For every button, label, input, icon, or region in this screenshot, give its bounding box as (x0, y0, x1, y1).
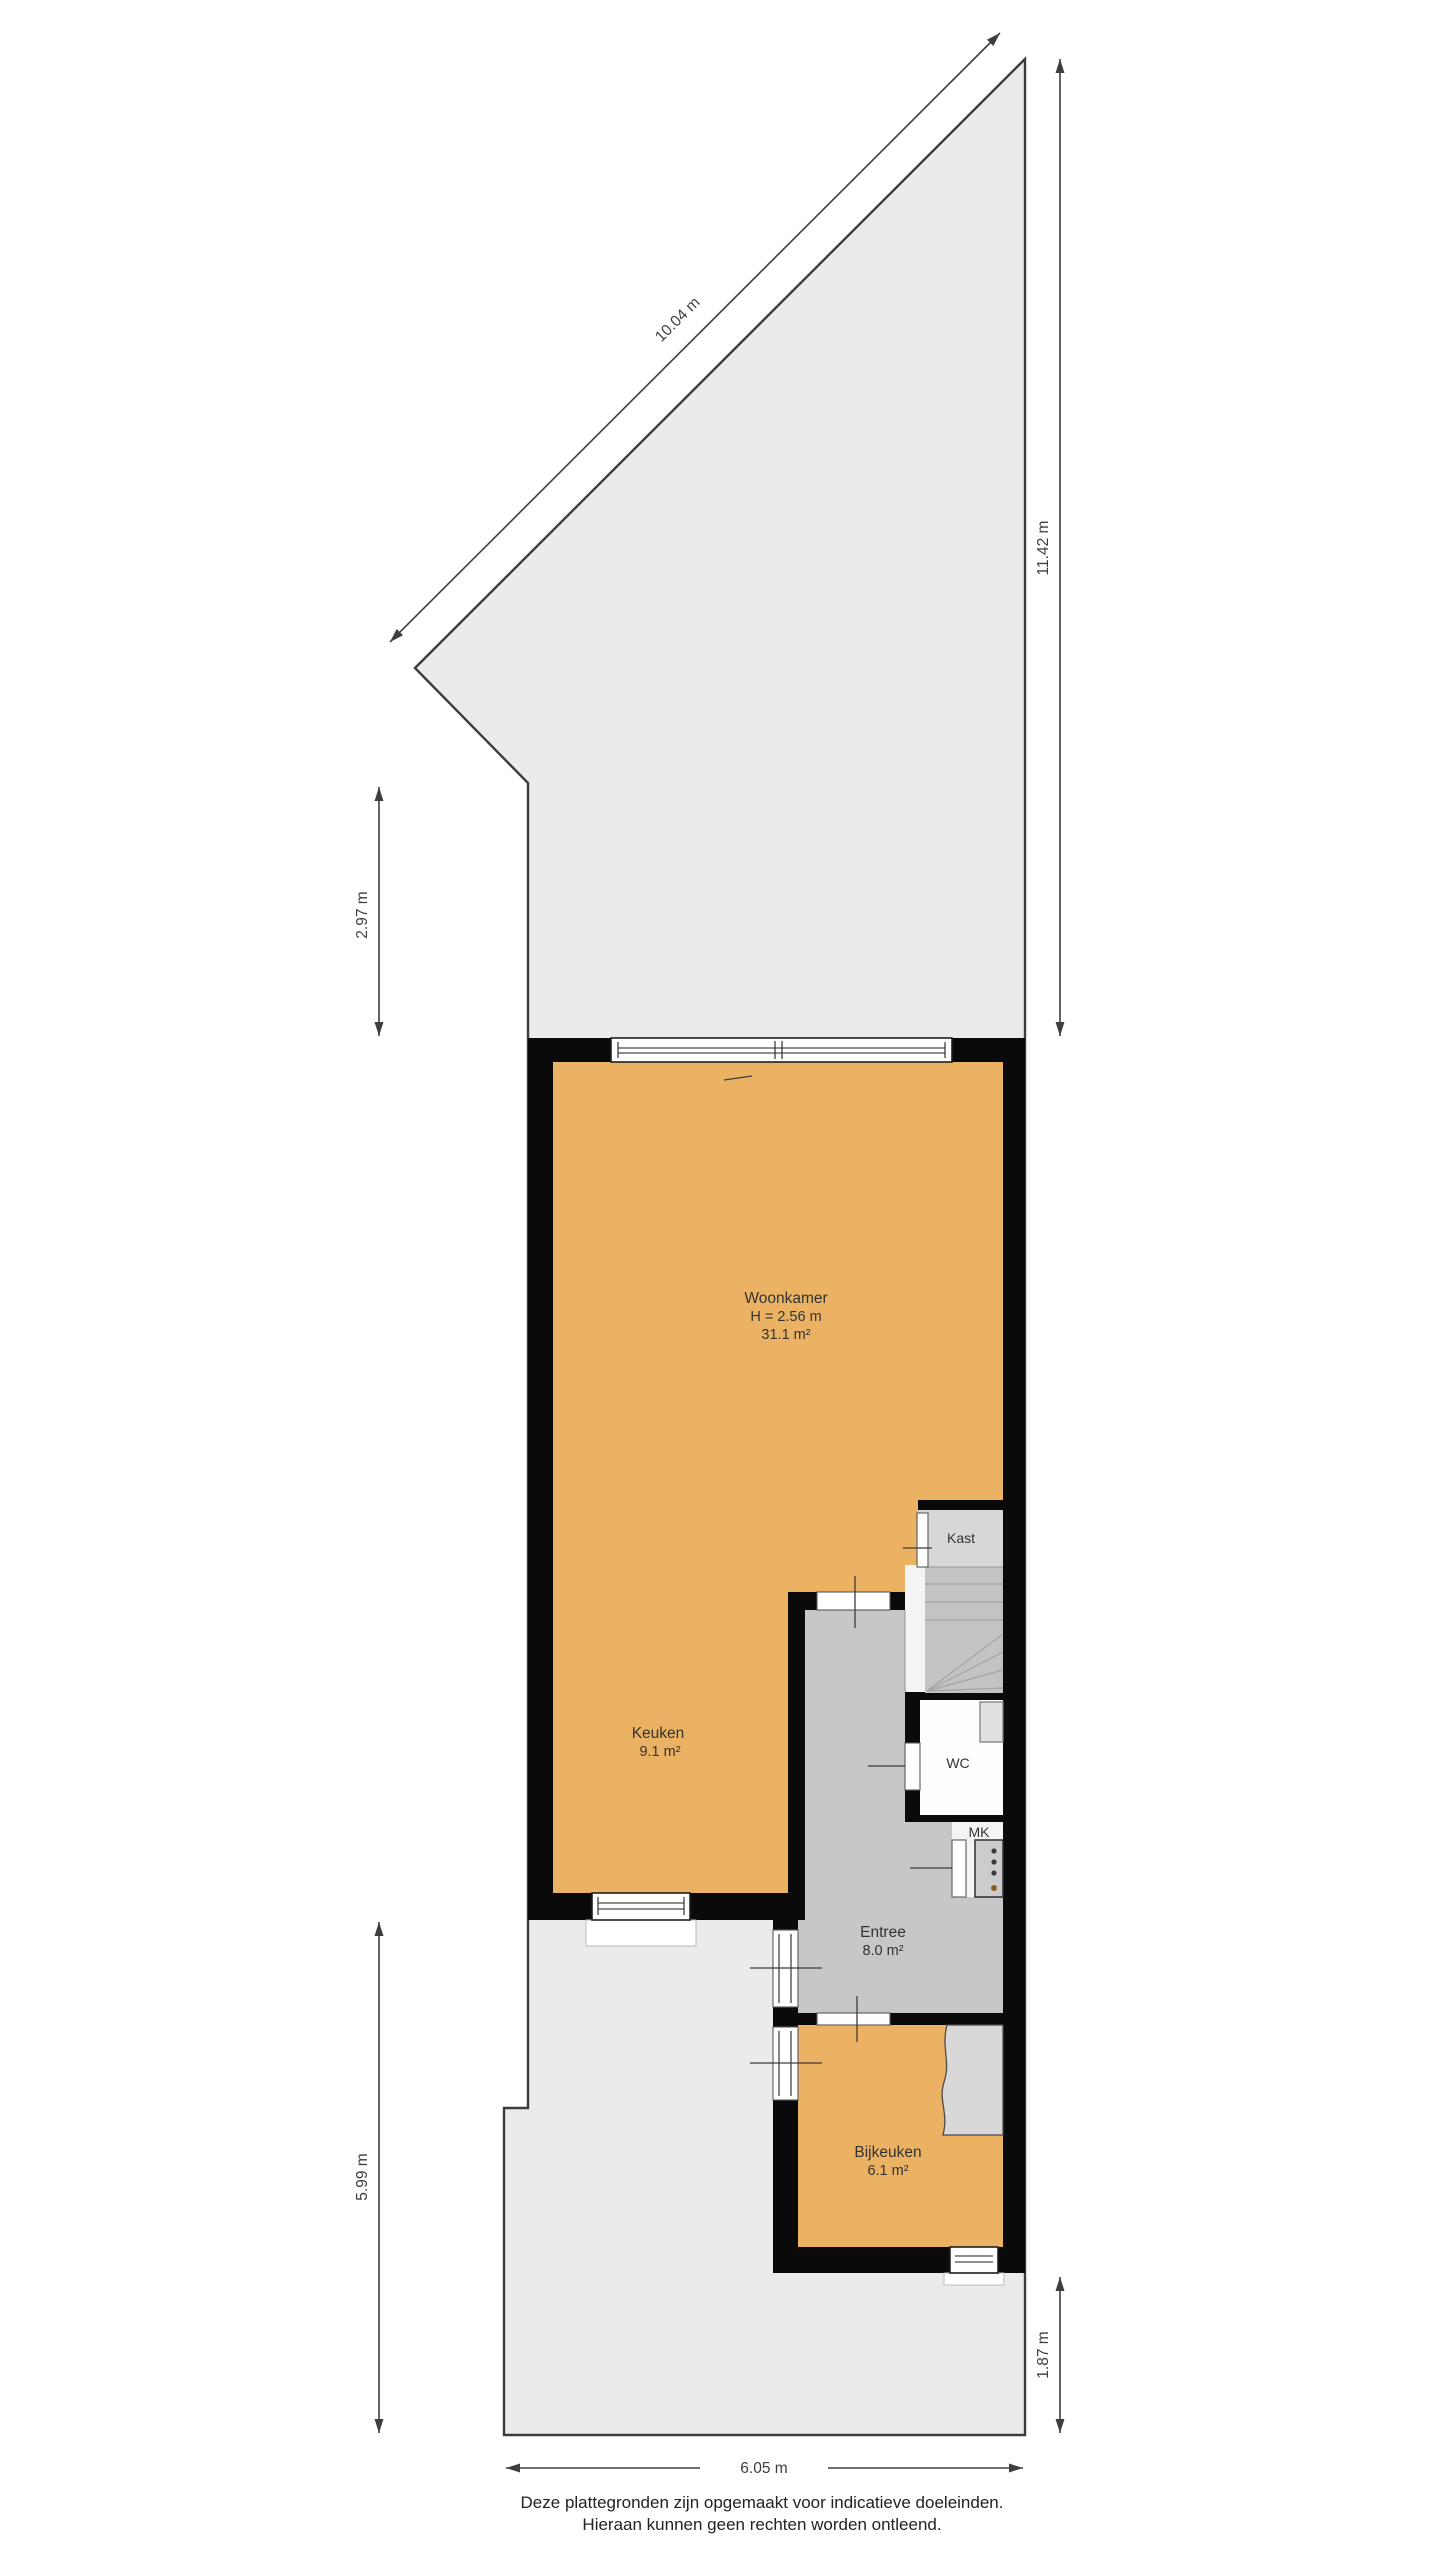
label-keuken-area: 9.1 m² (639, 1744, 680, 1760)
wc-cabinet (980, 1702, 1003, 1742)
wall-left (528, 1062, 553, 1920)
label-bijkeuken-area: 6.1 m² (867, 2163, 908, 2179)
dimension-label: 11.42 m (1035, 521, 1052, 576)
wall-below-stairs (905, 1692, 1003, 1700)
dimension-plot-bottom: 6.05 m (506, 2460, 1023, 2477)
disclaimer: Deze plattegronden zijn opgemaakt voor i… (521, 2493, 1004, 2534)
dimension-plot-left-upper: 2.97 m (354, 787, 379, 1036)
dimension-plot-right: 11.42 m (1035, 59, 1060, 1036)
label-entree: Entree (860, 1924, 906, 1941)
mk-meter-unit (975, 1840, 1003, 1897)
label-kast: Kast (947, 1530, 975, 1546)
wall-right (1003, 1038, 1025, 2273)
label-keuken: Keuken (632, 1725, 685, 1742)
meter-knob (991, 1870, 996, 1875)
floor-stairs-landing (905, 1565, 925, 1692)
floorplan-page: Woonkamer H = 2.56 m 31.1 m² Keuken 9.1 … (0, 0, 1440, 2560)
dimension-label: 10.04 m (652, 294, 704, 346)
label-mk: MK (969, 1824, 991, 1840)
meter-knob (991, 1859, 996, 1864)
window-sill (586, 1920, 696, 1946)
floor-stairs (925, 1567, 1003, 1693)
floorplan-canvas: Woonkamer H = 2.56 m 31.1 m² Keuken 9.1 … (0, 0, 1440, 2560)
label-wc: WC (946, 1755, 969, 1771)
dimension-plot-bottom-right: 1.87 m (1035, 2277, 1060, 2433)
window-keuken-bottom (586, 1893, 696, 1946)
dimension-plot-left-lower: 5.99 m (354, 1922, 379, 2433)
dimension-label: 2.97 m (354, 891, 371, 938)
label-entree-area: 8.0 m² (862, 1943, 903, 1959)
meter-knob (991, 1848, 996, 1853)
wall-kast-top (918, 1500, 1003, 1510)
disclaimer-line-2: Hieraan kunnen geen rechten worden ontle… (582, 2515, 941, 2534)
dimension-label: 5.99 m (354, 2153, 371, 2200)
label-woonkamer-area: 31.1 m² (761, 1327, 810, 1343)
dimension-label: 1.87 m (1035, 2331, 1052, 2378)
dimension-label: 6.05 m (740, 2460, 787, 2477)
label-bijkeuken: Bijkeuken (854, 2144, 921, 2161)
disclaimer-line-1: Deze plattegronden zijn opgemaakt voor i… (521, 2493, 1004, 2512)
window-bijkeuken-bottom (944, 2247, 1004, 2285)
wall-below-wc (905, 1815, 1003, 1822)
window-sill (944, 2273, 1004, 2285)
wall-keuken-entree (788, 1592, 805, 1920)
meter-knob (991, 1885, 997, 1891)
label-woonkamer: Woonkamer (744, 1290, 827, 1307)
bijkeuken-counter (942, 2025, 1003, 2135)
label-woonkamer-height: H = 2.56 m (750, 1309, 821, 1325)
